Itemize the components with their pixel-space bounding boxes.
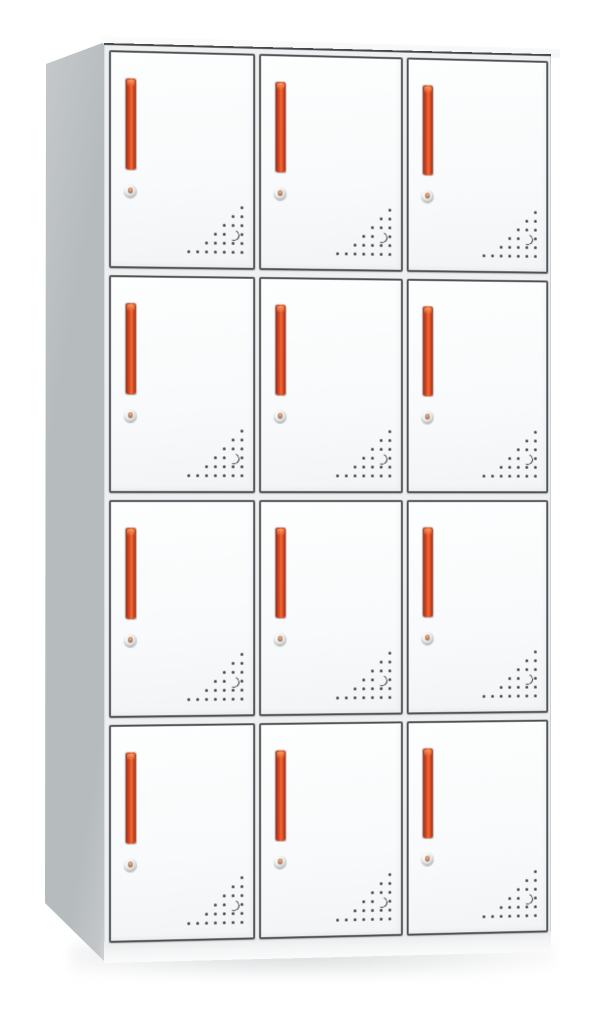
door-handle: [423, 528, 433, 617]
vent-dot: [491, 695, 494, 698]
vent-holes: [187, 653, 244, 702]
vent-dot: [388, 909, 391, 912]
vent-dot: [371, 474, 374, 477]
vent-dot: [354, 687, 357, 690]
vent-dot: [187, 250, 190, 253]
vent-dot: [517, 695, 520, 698]
vent-dot: [371, 466, 374, 469]
vent-dot: [534, 448, 537, 451]
locker-door-r4c1: [109, 723, 255, 943]
vent-dot: [223, 456, 226, 459]
vent-crescent-slot: [227, 452, 241, 466]
vent-dot: [534, 220, 537, 223]
vent-dot: [388, 430, 391, 433]
vent-dot: [500, 475, 503, 478]
vent-dot: [380, 448, 383, 451]
vent-dot: [223, 474, 226, 477]
vent-dot: [388, 448, 391, 451]
vent-dot: [534, 888, 537, 891]
vent-dot: [388, 917, 391, 920]
vent-dot: [517, 246, 520, 249]
vent-dot: [240, 912, 243, 915]
vent-dot: [362, 457, 365, 460]
vent-dot: [354, 474, 357, 477]
vent-dot: [232, 242, 235, 245]
vent-dot: [362, 235, 365, 238]
vent-dot: [336, 474, 339, 477]
vent-dot: [223, 251, 226, 254]
door-handle: [126, 79, 136, 170]
door-handle: [276, 751, 286, 841]
vent-dot: [214, 456, 217, 459]
vent-dot: [517, 677, 520, 680]
vent-dot: [534, 431, 537, 434]
vent-dot: [362, 678, 365, 681]
vent-dot: [491, 254, 494, 257]
vent-dot: [517, 686, 520, 689]
vent-dot: [500, 246, 503, 249]
vent-dot: [388, 439, 391, 442]
vent-dot: [525, 448, 528, 451]
vent-dot: [240, 680, 243, 683]
vent-dot: [388, 873, 391, 876]
vent-dot: [508, 897, 511, 900]
vent-dot: [240, 224, 243, 227]
vent-dot: [508, 906, 511, 909]
vent-dot: [371, 696, 374, 699]
vent-dot: [500, 254, 503, 257]
vent-dot: [214, 251, 217, 254]
vent-dot: [517, 448, 520, 451]
vent-dot: [380, 217, 383, 220]
cam-lock-keyhole: [421, 411, 433, 424]
vent-dot: [362, 474, 365, 477]
locker-door-r2c1: [109, 275, 255, 493]
vent-dot: [240, 447, 243, 450]
vent-dot: [232, 474, 235, 477]
vent-holes: [187, 205, 244, 255]
locker-door-r4c3: [407, 720, 548, 936]
vent-dot: [517, 906, 520, 909]
vent-crescent-slot: [375, 452, 389, 466]
vent-dot: [232, 671, 235, 674]
vent-dot: [388, 882, 391, 885]
vent-dot: [483, 695, 486, 698]
vent-dot: [214, 474, 217, 477]
vent-dot: [240, 438, 243, 441]
cam-lock-keyhole: [274, 633, 287, 646]
vent-dot: [388, 652, 391, 655]
vent-dot: [214, 233, 217, 236]
locker-door-r3c1: [109, 500, 255, 718]
vent-dot: [223, 698, 226, 701]
vent-dot: [508, 677, 511, 680]
vent-dot: [525, 439, 528, 442]
vent-dot: [388, 474, 391, 477]
locker-door-r3c3: [407, 500, 548, 714]
vent-dot: [380, 918, 383, 921]
cam-lock-keyhole: [421, 632, 433, 645]
vent-dot: [525, 466, 528, 469]
vent-dot: [534, 475, 537, 478]
door-handle: [126, 753, 136, 844]
vent-dot: [388, 660, 391, 663]
vent-dot: [223, 242, 226, 245]
vent-dot: [380, 687, 383, 690]
vent-dot: [240, 671, 243, 674]
vent-dot: [336, 696, 339, 699]
vent-dot: [196, 922, 199, 925]
door-handle: [276, 82, 286, 172]
vent-dot: [534, 694, 537, 697]
vent-dot: [223, 447, 226, 450]
vent-dot: [371, 891, 374, 894]
cam-lock-keyhole: [421, 190, 433, 203]
vent-dot: [380, 696, 383, 699]
vent-dot: [517, 914, 520, 917]
cam-lock-keyhole: [274, 187, 287, 200]
vent-dot: [380, 244, 383, 247]
vent-dot: [491, 475, 494, 478]
vent-dot: [517, 457, 520, 460]
vent-dot: [362, 244, 365, 247]
vent-dot: [380, 882, 383, 885]
vent-dot: [388, 678, 391, 681]
locker-door-r1c1: [109, 50, 255, 270]
vent-dot: [508, 457, 511, 460]
vent-crescent-slot: [521, 892, 535, 906]
vent-dot: [232, 921, 235, 924]
vent-dot: [525, 879, 528, 882]
vent-dot: [205, 241, 208, 244]
vent-dot: [388, 669, 391, 672]
vent-dot: [508, 475, 511, 478]
vent-crescent-slot: [375, 895, 389, 909]
vent-dot: [525, 686, 528, 689]
vent-dot: [371, 226, 374, 229]
vent-dot: [240, 653, 243, 656]
vent-dot: [240, 206, 243, 209]
vent-dot: [232, 438, 235, 441]
vent-dot: [354, 466, 357, 469]
vent-dot: [525, 668, 528, 671]
vent-dot: [388, 218, 391, 221]
vent-dot: [336, 919, 339, 922]
vent-dot: [534, 211, 537, 214]
vent-dot: [223, 689, 226, 692]
vent-dot: [232, 447, 235, 450]
vent-dot: [380, 226, 383, 229]
vent-dot: [240, 876, 243, 879]
vent-dot: [345, 696, 348, 699]
vent-dot: [534, 246, 537, 249]
vent-dot: [362, 253, 365, 256]
vent-dot: [534, 905, 537, 908]
door-handle: [423, 749, 433, 839]
vent-dot: [223, 894, 226, 897]
vent-holes: [483, 210, 538, 259]
vent-dot: [508, 686, 511, 689]
vent-dot: [362, 918, 365, 921]
vent-dot: [380, 253, 383, 256]
vent-dot: [232, 662, 235, 665]
vent-dot: [223, 903, 226, 906]
vent-dot: [205, 698, 208, 701]
vent-dot: [534, 237, 537, 240]
vent-holes: [483, 431, 538, 479]
vent-crescent-slot: [521, 233, 535, 247]
vent-dot: [534, 686, 537, 689]
vent-dot: [517, 237, 520, 240]
locker-door-r1c3: [407, 57, 548, 273]
vent-dot: [240, 233, 243, 236]
locker-door-r4c2: [259, 721, 403, 939]
vent-dot: [388, 209, 391, 212]
vent-dot: [362, 696, 365, 699]
vent-dot: [534, 668, 537, 671]
vent-crescent-slot: [521, 672, 535, 686]
door-handle: [126, 303, 136, 394]
vent-dot: [345, 252, 348, 255]
door-handle: [276, 305, 286, 395]
vent-dot: [525, 255, 528, 258]
vent-dot: [388, 235, 391, 238]
vent-dot: [500, 686, 503, 689]
cabinet-front: [104, 43, 551, 963]
vent-dot: [388, 466, 391, 469]
vent-dot: [388, 226, 391, 229]
vent-dot: [223, 671, 226, 674]
vent-dot: [223, 921, 226, 924]
vent-crescent-slot: [521, 453, 535, 467]
vent-dot: [525, 220, 528, 223]
vent-dot: [223, 680, 226, 683]
vent-dot: [388, 891, 391, 894]
vent-dot: [388, 457, 391, 460]
vent-dot: [214, 912, 217, 915]
vent-dot: [362, 900, 365, 903]
vent-dot: [205, 922, 208, 925]
vent-dot: [388, 253, 391, 256]
vent-dot: [371, 909, 374, 912]
vent-dot: [240, 215, 243, 218]
vent-dot: [362, 909, 365, 912]
locker-door-r3c2: [259, 500, 403, 716]
vent-dot: [534, 870, 537, 873]
vent-dot: [354, 252, 357, 255]
vent-dot: [508, 255, 511, 258]
vent-holes: [336, 652, 392, 701]
vent-dot: [525, 694, 528, 697]
vent-dot: [380, 661, 383, 664]
vent-dot: [371, 900, 374, 903]
door-handle: [276, 528, 286, 618]
vent-holes: [336, 430, 392, 478]
vent-dot: [354, 696, 357, 699]
vent-dot: [388, 687, 391, 690]
vent-dot: [232, 912, 235, 915]
vent-dot: [534, 457, 537, 460]
vent-dot: [240, 242, 243, 245]
cam-lock-keyhole: [421, 853, 433, 866]
vent-dot: [483, 915, 486, 918]
vent-dot: [336, 252, 339, 255]
vent-dot: [525, 905, 528, 908]
vent-dot: [240, 885, 243, 888]
vent-dot: [534, 659, 537, 662]
vent-dot: [232, 251, 235, 254]
vent-dot: [214, 689, 217, 692]
vent-dot: [205, 474, 208, 477]
vent-dot: [223, 224, 226, 227]
vent-dot: [525, 475, 528, 478]
vent-dot: [371, 253, 374, 256]
vent-dot: [508, 246, 511, 249]
vent-dot: [345, 918, 348, 921]
vent-dot: [240, 251, 243, 254]
vent-crescent-slot: [375, 231, 389, 245]
vent-dot: [380, 891, 383, 894]
vent-dot: [517, 668, 520, 671]
vent-dot: [240, 465, 243, 468]
vent-dot: [223, 912, 226, 915]
vent-dot: [483, 254, 486, 257]
vent-dot: [491, 915, 494, 918]
vent-dot: [232, 885, 235, 888]
vent-dot: [371, 457, 374, 460]
vent-dot: [517, 228, 520, 231]
vent-dot: [508, 915, 511, 918]
cam-lock-keyhole: [124, 634, 137, 647]
vent-dot: [371, 448, 374, 451]
vent-dot: [240, 698, 243, 701]
door-handle: [423, 85, 433, 175]
vent-holes: [483, 870, 538, 919]
vent-dot: [380, 439, 383, 442]
cabinet-side-panel: [40, 36, 110, 986]
vent-dot: [205, 689, 208, 692]
vent-dot: [534, 229, 537, 232]
vent-dot: [240, 430, 243, 433]
vent-crescent-slot: [227, 898, 241, 912]
vent-dot: [196, 698, 199, 701]
vent-dot: [223, 233, 226, 236]
locker-door-r2c2: [259, 277, 403, 493]
vent-dot: [345, 474, 348, 477]
vent-dot: [371, 687, 374, 690]
vent-dot: [388, 900, 391, 903]
vent-dot: [534, 914, 537, 917]
vent-dot: [240, 689, 243, 692]
vent-dot: [500, 466, 503, 469]
locker-door-r1c2: [259, 54, 403, 272]
cam-lock-keyhole: [124, 858, 137, 871]
vent-dot: [205, 913, 208, 916]
vent-dot: [517, 888, 520, 891]
vent-dot: [380, 909, 383, 912]
vent-crescent-slot: [227, 675, 241, 689]
vent-dot: [534, 896, 537, 899]
vent-dot: [214, 465, 217, 468]
vent-dot: [517, 255, 520, 258]
vent-dot: [362, 466, 365, 469]
vent-dot: [232, 689, 235, 692]
vent-dot: [187, 698, 190, 701]
vent-dot: [223, 465, 226, 468]
vent-dot: [371, 918, 374, 921]
vent-dot: [240, 474, 243, 477]
vent-dot: [371, 235, 374, 238]
vent-dot: [187, 922, 190, 925]
vent-crescent-slot: [375, 674, 389, 688]
cam-lock-keyhole: [274, 410, 287, 423]
vent-dot: [354, 909, 357, 912]
vent-dot: [214, 698, 217, 701]
vent-dot: [525, 228, 528, 231]
vent-dot: [214, 242, 217, 245]
vent-dot: [534, 879, 537, 882]
vent-dot: [500, 695, 503, 698]
vent-dot: [232, 894, 235, 897]
vent-dot: [517, 466, 520, 469]
door-handle: [126, 528, 136, 619]
vent-dot: [205, 465, 208, 468]
vent-dot: [525, 888, 528, 891]
vent-dot: [534, 255, 537, 258]
vent-dot: [214, 680, 217, 683]
vent-dot: [214, 921, 217, 924]
vent-dot: [483, 475, 486, 478]
vent-dot: [380, 466, 383, 469]
vent-dot: [240, 662, 243, 665]
vent-dot: [232, 215, 235, 218]
vent-holes: [187, 429, 244, 478]
vent-dot: [240, 921, 243, 924]
vent-dot: [240, 456, 243, 459]
vent-crescent-slot: [227, 228, 241, 242]
vent-dot: [187, 474, 190, 477]
vent-holes: [336, 208, 392, 257]
vent-dot: [534, 466, 537, 469]
vent-dot: [196, 474, 199, 477]
cam-lock-keyhole: [274, 855, 287, 868]
vent-dot: [525, 659, 528, 662]
vent-dot: [354, 244, 357, 247]
vent-dot: [508, 466, 511, 469]
vent-dot: [500, 915, 503, 918]
vent-dot: [232, 465, 235, 468]
vent-dot: [517, 475, 520, 478]
vent-dot: [371, 670, 374, 673]
vent-dot: [214, 904, 217, 907]
door-handle: [423, 306, 433, 395]
vent-holes: [187, 876, 244, 926]
vent-holes: [483, 650, 538, 698]
vent-dot: [232, 224, 235, 227]
vent-dot: [362, 687, 365, 690]
vent-dot: [534, 440, 537, 443]
vent-dot: [388, 244, 391, 247]
vent-dot: [534, 650, 537, 653]
vent-dot: [240, 903, 243, 906]
vent-dot: [525, 246, 528, 249]
vent-dot: [205, 250, 208, 253]
vent-dot: [508, 237, 511, 240]
vent-dot: [371, 678, 374, 681]
vent-dot: [517, 897, 520, 900]
cam-lock-keyhole: [124, 184, 137, 197]
vent-dot: [240, 894, 243, 897]
